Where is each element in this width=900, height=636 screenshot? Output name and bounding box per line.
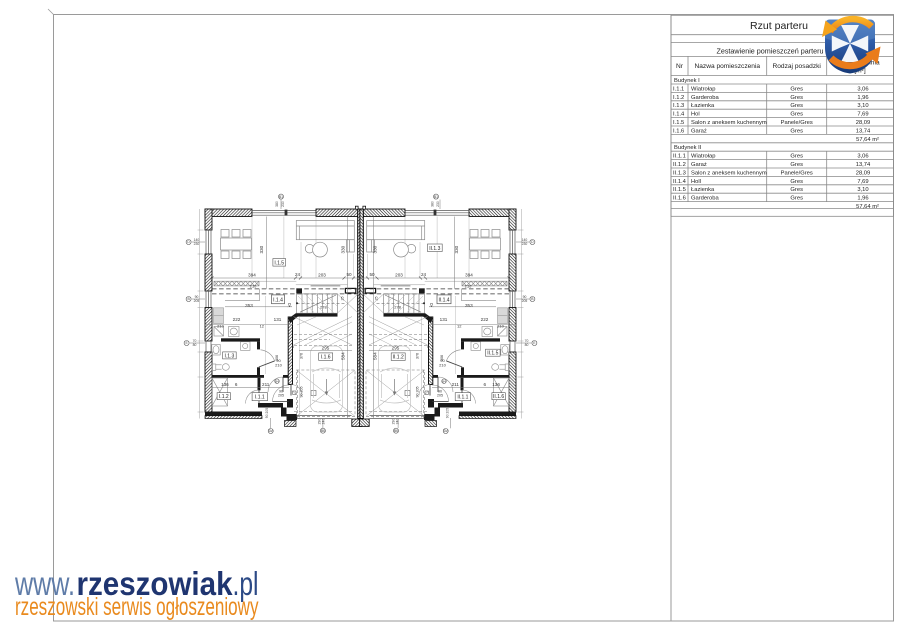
svg-text:Garaż: Garaż — [691, 162, 707, 168]
svg-text:222: 222 — [233, 317, 241, 322]
svg-text:Wiatrołap: Wiatrołap — [691, 86, 715, 92]
svg-text:330: 330 — [340, 245, 345, 253]
svg-text:210: 210 — [497, 324, 504, 329]
svg-text:Gres: Gres — [790, 95, 803, 101]
svg-text:353: 353 — [245, 303, 253, 308]
svg-text:205: 205 — [278, 394, 284, 398]
svg-text:3,06: 3,06 — [857, 86, 868, 92]
svg-text:25: 25 — [340, 297, 344, 301]
svg-text:Gres: Gres — [790, 154, 803, 160]
svg-text:II.1.3: II.1.3 — [673, 170, 686, 176]
svg-text:II.1.2: II.1.2 — [393, 355, 404, 361]
svg-text:131: 131 — [440, 317, 448, 322]
svg-text:Gres: Gres — [790, 196, 803, 202]
svg-text:90 205: 90 205 — [446, 408, 450, 418]
svg-text:I.1.2: I.1.2 — [219, 394, 229, 400]
svg-text:376: 376 — [299, 353, 303, 359]
svg-text:I.1.5: I.1.5 — [274, 260, 284, 266]
svg-text:222: 222 — [481, 317, 489, 322]
svg-text:205: 205 — [522, 299, 528, 303]
svg-text:230: 230 — [194, 242, 200, 246]
svg-text:57,64 m²: 57,64 m² — [856, 204, 879, 210]
svg-text:211: 211 — [452, 382, 460, 387]
svg-text:Dz: Dz — [269, 429, 273, 433]
svg-text:Gres: Gres — [790, 179, 803, 185]
svg-text:7,69: 7,69 — [857, 112, 868, 118]
svg-text:12: 12 — [260, 324, 265, 329]
svg-text:203: 203 — [395, 273, 403, 278]
svg-text:205: 205 — [194, 299, 200, 303]
svg-text:210: 210 — [217, 324, 224, 329]
svg-text:584: 584 — [373, 352, 378, 360]
svg-text:I.1.5: I.1.5 — [673, 120, 684, 126]
svg-text:230: 230 — [522, 242, 528, 246]
svg-text:II.1.3: II.1.3 — [429, 246, 440, 252]
svg-text:Holl: Holl — [691, 179, 701, 185]
svg-text:I.1.4: I.1.4 — [273, 298, 283, 304]
svg-text:330: 330 — [259, 245, 264, 253]
svg-text:II.1.5: II.1.5 — [487, 351, 498, 357]
svg-text:90 205: 90 205 — [300, 387, 304, 398]
svg-text:I.1.2: I.1.2 — [673, 95, 684, 101]
svg-text:136: 136 — [492, 382, 500, 387]
svg-text:205: 205 — [437, 394, 443, 398]
svg-text:rzeszowski serwis ogłoszeniowy: rzeszowski serwis ogłoszeniowy — [15, 593, 259, 621]
svg-text:II.1.6: II.1.6 — [493, 394, 504, 400]
svg-text:Salon z aneksem kuchennym: Salon z aneksem kuchennym — [691, 170, 767, 176]
svg-text:Garaż: Garaż — [691, 128, 707, 134]
svg-text:28,09: 28,09 — [856, 120, 871, 126]
svg-text:50: 50 — [346, 272, 352, 277]
svg-text:80: 80 — [525, 343, 529, 347]
svg-text:330: 330 — [373, 245, 378, 253]
svg-text:1,96: 1,96 — [857, 196, 868, 202]
svg-text:I.1.3: I.1.3 — [225, 353, 235, 359]
svg-text:Dz: Dz — [444, 429, 448, 433]
svg-text:I.1.6: I.1.6 — [673, 128, 684, 134]
svg-text:B6: B6 — [394, 429, 398, 433]
svg-text:Gres: Gres — [790, 86, 803, 92]
svg-text:Wiatrołap: Wiatrołap — [691, 154, 715, 160]
svg-text:Hol: Hol — [691, 112, 700, 118]
svg-text:B1: B1 — [279, 195, 283, 199]
svg-text:3,10: 3,10 — [857, 103, 868, 109]
svg-text:7,69: 7,69 — [857, 179, 868, 185]
svg-text:Panele/Gres: Panele/Gres — [781, 170, 813, 176]
svg-text:90 205: 90 205 — [265, 408, 269, 418]
svg-text:2,10: 2,10 — [250, 285, 257, 289]
svg-text:24: 24 — [295, 272, 301, 277]
svg-text:131: 131 — [274, 317, 282, 322]
svg-text:I.1.3: I.1.3 — [673, 103, 684, 109]
svg-text:230: 230 — [436, 201, 440, 207]
svg-text:Salon z aneksem kuchennym: Salon z aneksem kuchennym — [691, 120, 767, 126]
svg-text:Łazienka: Łazienka — [691, 103, 715, 109]
svg-text:394: 394 — [465, 273, 473, 278]
svg-text:Rodzaj posadzki: Rodzaj posadzki — [773, 63, 822, 70]
svg-text:330: 330 — [454, 245, 459, 253]
svg-text:Gres: Gres — [790, 112, 803, 118]
svg-text:II.1.5: II.1.5 — [673, 187, 686, 193]
svg-text:3,10: 3,10 — [857, 187, 868, 193]
svg-text:584: 584 — [340, 352, 345, 360]
svg-text:I.1.1: I.1.1 — [673, 86, 684, 92]
svg-text:Gres: Gres — [790, 162, 803, 168]
svg-text:II.1.6: II.1.6 — [673, 196, 686, 202]
svg-text:240: 240 — [321, 419, 325, 425]
svg-text:I.1.4: I.1.4 — [673, 112, 685, 118]
svg-text:211: 211 — [262, 382, 270, 387]
svg-text:2,10: 2,10 — [465, 285, 472, 289]
svg-text:B4: B4 — [275, 379, 279, 383]
svg-text:5: 5 — [292, 345, 294, 349]
svg-text:II.1.2: II.1.2 — [673, 162, 686, 168]
svg-text:12: 12 — [457, 324, 462, 329]
svg-text:136: 136 — [221, 382, 229, 387]
svg-text:203: 203 — [318, 273, 326, 278]
svg-text:Gres: Gres — [790, 187, 803, 193]
svg-text:25: 25 — [375, 297, 379, 301]
svg-text:B4: B4 — [442, 379, 446, 383]
svg-text:II.1.4: II.1.4 — [673, 179, 687, 185]
svg-text:Łazienka: Łazienka — [691, 187, 715, 193]
svg-text:Gres: Gres — [790, 128, 803, 134]
svg-text:278: 278 — [394, 304, 401, 309]
svg-text:380: 380 — [430, 201, 434, 207]
svg-text:6: 6 — [484, 382, 487, 387]
svg-text:90 205: 90 205 — [415, 387, 419, 398]
svg-text:Budynek II: Budynek II — [674, 145, 702, 151]
svg-text:394: 394 — [248, 273, 256, 278]
svg-text:3,06: 3,06 — [857, 154, 868, 160]
svg-text:210: 210 — [275, 363, 282, 368]
svg-text:Gres: Gres — [790, 103, 803, 109]
svg-text:Budynek I: Budynek I — [674, 78, 700, 84]
svg-text:I.1.1: I.1.1 — [255, 395, 265, 401]
svg-text:376: 376 — [416, 353, 420, 359]
svg-text:28,09: 28,09 — [856, 170, 871, 176]
svg-text:295: 295 — [392, 345, 400, 350]
svg-text:24: 24 — [421, 272, 427, 277]
svg-text:Rzut parteru: Rzut parteru — [750, 20, 808, 32]
svg-text:210: 210 — [439, 363, 446, 368]
svg-text:II.1.4: II.1.4 — [438, 298, 449, 304]
svg-text:80: 80 — [193, 343, 197, 347]
svg-text:230: 230 — [281, 201, 285, 207]
svg-text:13,74: 13,74 — [856, 128, 871, 134]
svg-text:Zestawienie pomieszczeń parter: Zestawienie pomieszczeń parteru — [716, 46, 823, 55]
svg-text:Garderoba: Garderoba — [691, 95, 719, 101]
svg-text:Nr: Nr — [676, 63, 684, 70]
svg-text:B6: B6 — [321, 429, 325, 433]
svg-text:II.1.1: II.1.1 — [457, 395, 468, 401]
svg-text:I.1.6: I.1.6 — [321, 355, 331, 361]
svg-text:Garderoba: Garderoba — [691, 196, 719, 202]
svg-text:II.1.1: II.1.1 — [673, 154, 686, 160]
svg-text:B1: B1 — [434, 195, 438, 199]
svg-text:6: 6 — [235, 382, 238, 387]
svg-text:Panele/Gres: Panele/Gres — [781, 120, 813, 126]
svg-text:13,74: 13,74 — [856, 162, 871, 168]
svg-text:50: 50 — [369, 272, 375, 277]
svg-text:1,96: 1,96 — [857, 95, 868, 101]
svg-text:380: 380 — [275, 201, 279, 207]
svg-text:278: 278 — [320, 304, 327, 309]
svg-text:240: 240 — [396, 419, 400, 425]
svg-text:295: 295 — [322, 345, 330, 350]
svg-text:5: 5 — [427, 345, 429, 349]
svg-text:57,64 m²: 57,64 m² — [856, 137, 879, 143]
svg-text:353: 353 — [465, 303, 473, 308]
svg-text:Nazwa pomieszczenia: Nazwa pomieszczenia — [694, 63, 760, 70]
